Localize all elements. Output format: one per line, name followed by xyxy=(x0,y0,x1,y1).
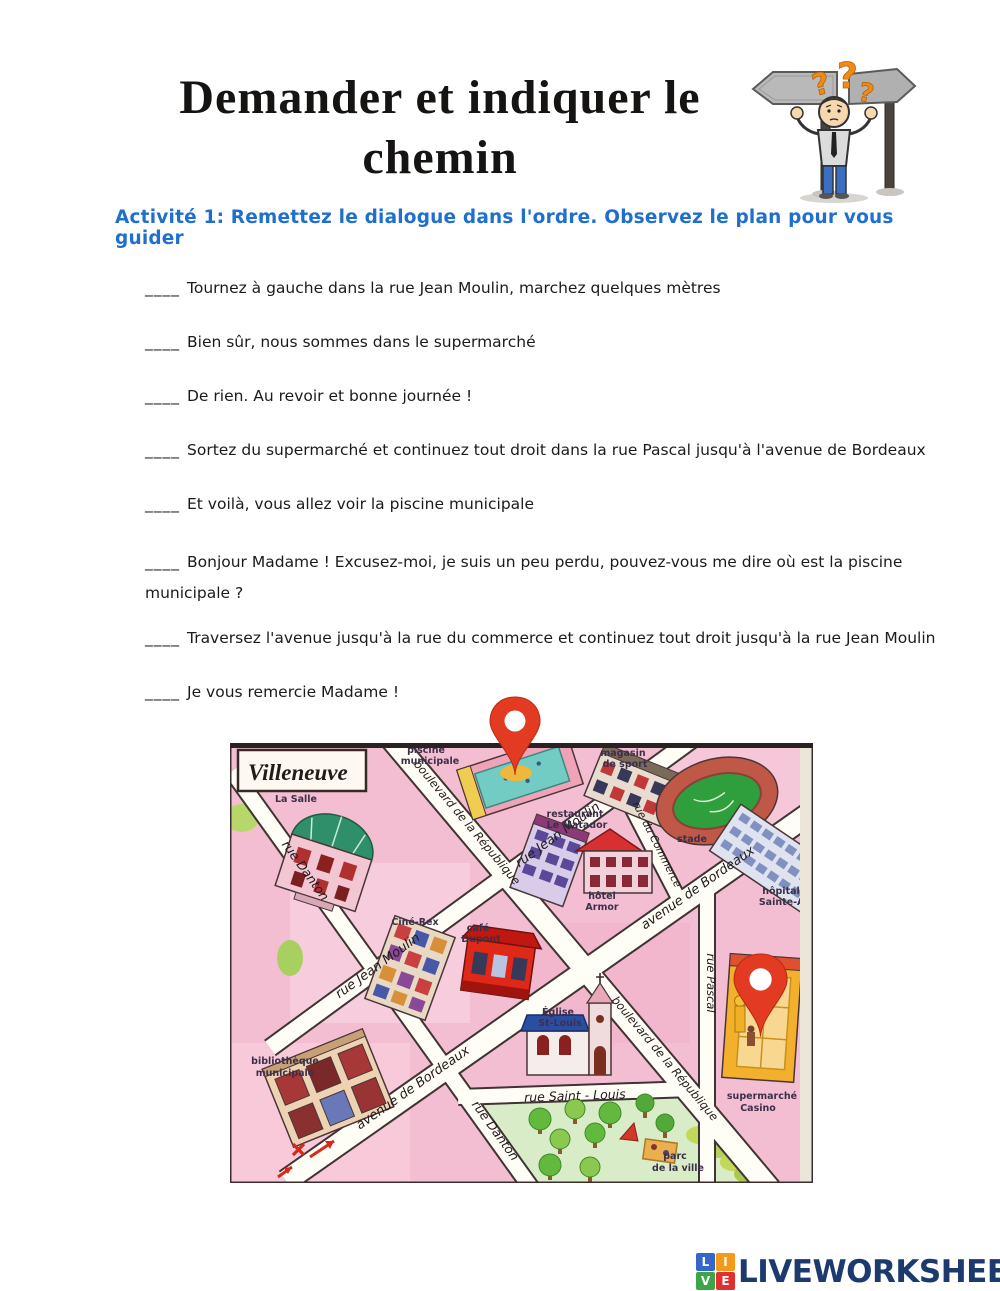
dialogue-item: ____Bien sûr, nous sommes dans le superm… xyxy=(145,331,975,353)
street-label-pascal: rue Pascal xyxy=(704,953,718,1013)
dialogue-item: ____Et voilà, vous allez voir la piscine… xyxy=(145,493,975,515)
liveworksheets-logo-icon: L I V E xyxy=(696,1253,736,1291)
answer-blank[interactable]: ____ xyxy=(145,279,180,297)
page-title-line2: chemin xyxy=(110,128,770,188)
place-label-magasin-2: de sport xyxy=(603,759,648,770)
place-label-cafe-2: Dupont xyxy=(461,934,501,945)
logo-square-e: E xyxy=(716,1272,735,1290)
answer-blank[interactable]: ____ xyxy=(145,333,180,351)
place-label-supermarche-2: Casino xyxy=(740,1103,776,1114)
dialogue-text: De rien. Au revoir et bonne journée ! xyxy=(187,387,472,405)
answer-blank[interactable]: ____ xyxy=(145,683,180,701)
answer-blank[interactable]: ____ xyxy=(145,629,180,647)
dialogue-text: Bien sûr, nous sommes dans le supermarch… xyxy=(187,333,536,351)
page-title-line1: Demander et indiquer le xyxy=(110,68,770,128)
dialogue-list: ____Tournez à gauche dans la rue Jean Mo… xyxy=(145,277,975,735)
dialogue-text: Tournez à gauche dans la rue Jean Moulin… xyxy=(187,279,721,297)
question-mark-icon: ? xyxy=(837,56,858,97)
dialogue-text: Et voilà, vous allez voir la piscine mun… xyxy=(187,495,534,513)
logo-square-v: V xyxy=(696,1272,715,1290)
place-label-restaurant-2: Le Matador xyxy=(547,820,608,831)
place-label-biblio-2: municipale xyxy=(256,1068,314,1079)
logo-square-i: I xyxy=(716,1253,735,1271)
place-label-parc-2: de la ville xyxy=(652,1163,704,1174)
place-label-eglise: Église xyxy=(542,1006,574,1018)
dialogue-item: ____De rien. Au revoir et bonne journée … xyxy=(145,385,975,407)
answer-blank[interactable]: ____ xyxy=(145,553,180,571)
place-label-cine: Ciné-Rex xyxy=(391,917,438,928)
dialogue-item: ____Tournez à gauche dans la rue Jean Mo… xyxy=(145,277,975,299)
page-title: Demander et indiquer le chemin xyxy=(110,68,770,188)
liveworksheets-logo-text: LIVEWORKSHEETS xyxy=(738,1254,1000,1290)
place-label-stade: stade xyxy=(677,834,707,845)
map-title: Villeneuve xyxy=(248,760,348,785)
place-label-musee-2: La Salle xyxy=(275,794,317,805)
dialogue-item: ____Je vous remercie Madame ! xyxy=(145,681,975,703)
activity-instruction: Activité 1: Remettez le dialogue dans l'… xyxy=(115,207,935,249)
place-label-cafe: café xyxy=(467,923,490,934)
map-edge-strip xyxy=(800,743,813,1183)
dialogue-text: Bonjour Madame ! Excusez-moi, je suis un… xyxy=(145,553,902,602)
place-label-supermarche: supermarché xyxy=(727,1091,797,1102)
place-label-hotel-2: Armor xyxy=(585,902,618,913)
dialogue-text: Je vous remercie Madame ! xyxy=(187,683,399,701)
place-label-restaurant: restaurant xyxy=(547,809,604,820)
place-label-hopital: hôpital xyxy=(762,886,800,897)
place-label-magasin: magasin xyxy=(600,748,645,759)
dialogue-item: ____Traversez l'avenue jusqu'à la rue du… xyxy=(145,627,975,649)
answer-blank[interactable]: ____ xyxy=(145,495,180,513)
answer-blank[interactable]: ____ xyxy=(145,441,180,459)
map-title-box: Villeneuve xyxy=(238,750,366,791)
dialogue-item: ____Sortez du supermarché et continuez t… xyxy=(145,439,975,461)
place-label-biblio: bibliothèque xyxy=(251,1056,319,1067)
dialogue-text: Traversez l'avenue jusqu'à la rue du com… xyxy=(187,629,935,647)
dialogue-text: Sortez du supermarché et continuez tout … xyxy=(187,441,926,459)
place-label-parc: parc xyxy=(663,1151,687,1162)
confused-person-icon xyxy=(791,97,877,199)
liveworksheets-logo[interactable]: L I V E LIVEWORKSHEETS xyxy=(696,1252,1000,1291)
answer-blank[interactable]: ____ xyxy=(145,387,180,405)
dialogue-item: ____Bonjour Madame ! Excusez-moi, je sui… xyxy=(145,547,927,609)
town-map: rue Danton rue Danton rue Jean Moulin ru… xyxy=(230,743,813,1183)
logo-square-l: L xyxy=(696,1253,715,1271)
place-label-piscine-2: municipale xyxy=(401,756,459,767)
confused-person-signpost-illustration: ? ? ? xyxy=(745,56,923,210)
place-label-eglise-2: St-Louis xyxy=(538,1018,582,1029)
worksheet-page: Demander et indiquer le chemin ? ? ? xyxy=(0,0,1000,1291)
place-label-hotel: hôtel xyxy=(588,891,616,902)
